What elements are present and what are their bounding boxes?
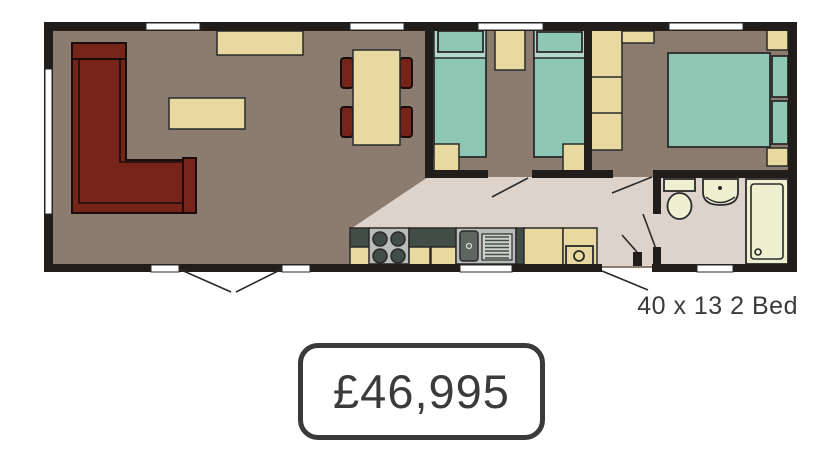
kitchen-counter-icon <box>409 228 456 247</box>
basin-tap <box>718 186 722 190</box>
ottoman-icon <box>434 144 459 173</box>
pillow-icon <box>438 31 483 52</box>
window-icon <box>669 23 743 30</box>
washing-machine-icon <box>566 246 593 266</box>
basin-icon <box>703 179 738 205</box>
dining-chair-icon <box>341 58 353 88</box>
partition-twin-master <box>584 28 592 177</box>
dining-chair-icon <box>400 58 412 88</box>
french-door-open-icon <box>179 269 231 292</box>
drainer-grooves <box>485 237 509 258</box>
french-door-panel <box>151 265 179 272</box>
model-label: 40 x 13 2 Bed <box>588 292 798 321</box>
ottoman-icon <box>563 144 586 173</box>
label-leader-line <box>602 271 648 290</box>
window-icon <box>146 23 200 30</box>
kitchen-cabinet-icon <box>431 247 456 265</box>
toilet-icon <box>668 193 692 219</box>
exterior-wall-bottom <box>44 264 602 272</box>
price-badge: £46,995 <box>298 343 545 440</box>
bedside-unit-icon <box>767 148 788 166</box>
sofa-armrest <box>72 43 126 59</box>
window-icon <box>45 69 52 214</box>
sofa-armrest <box>183 158 196 213</box>
window-icon <box>460 265 512 272</box>
wardrobe-icon <box>591 28 622 150</box>
french-door-open-icon <box>236 269 282 292</box>
hob-burner <box>391 249 405 263</box>
sideboard-icon <box>217 31 303 55</box>
pillow-icon <box>537 32 582 52</box>
window-icon <box>697 265 733 272</box>
sink-basin <box>460 231 478 261</box>
french-door-panel <box>282 265 310 272</box>
window-icon <box>478 23 543 30</box>
partition-bathroom-top <box>653 170 790 178</box>
bedside-unit-icon <box>767 30 788 50</box>
kitchen-counter-icon <box>350 228 370 247</box>
shelf-icon <box>622 31 654 43</box>
partition-bathroom-left <box>653 177 661 214</box>
exterior-wall-right <box>788 22 797 272</box>
double-bed-icon <box>668 53 770 147</box>
partition-hallway <box>425 170 488 178</box>
partition-lounge-twin <box>425 28 433 177</box>
bedside-unit-icon <box>495 30 525 70</box>
shower-icon <box>746 179 788 264</box>
pillow-icon <box>772 56 788 97</box>
hob-burner <box>391 232 405 246</box>
kitchen-area <box>350 228 597 267</box>
partition-hallway <box>532 170 613 178</box>
dining-chair-icon <box>341 107 353 137</box>
kitchen-cabinet-icon <box>350 247 370 265</box>
dining-chair-icon <box>400 107 412 137</box>
window-icon <box>350 23 404 30</box>
coffee-table-icon <box>169 98 245 129</box>
dining-table-icon <box>353 50 400 145</box>
hob-burner <box>373 232 387 246</box>
hob-burner <box>373 249 387 263</box>
kitchen-cabinet-icon <box>524 228 563 266</box>
toilet-cistern <box>664 179 695 191</box>
pillow-icon <box>772 101 788 144</box>
kitchen-cabinet-icon <box>409 247 430 265</box>
entrance-door-post <box>633 252 642 266</box>
price-text: £46,995 <box>333 364 510 419</box>
partition-bathroom-left-stub <box>653 247 661 266</box>
